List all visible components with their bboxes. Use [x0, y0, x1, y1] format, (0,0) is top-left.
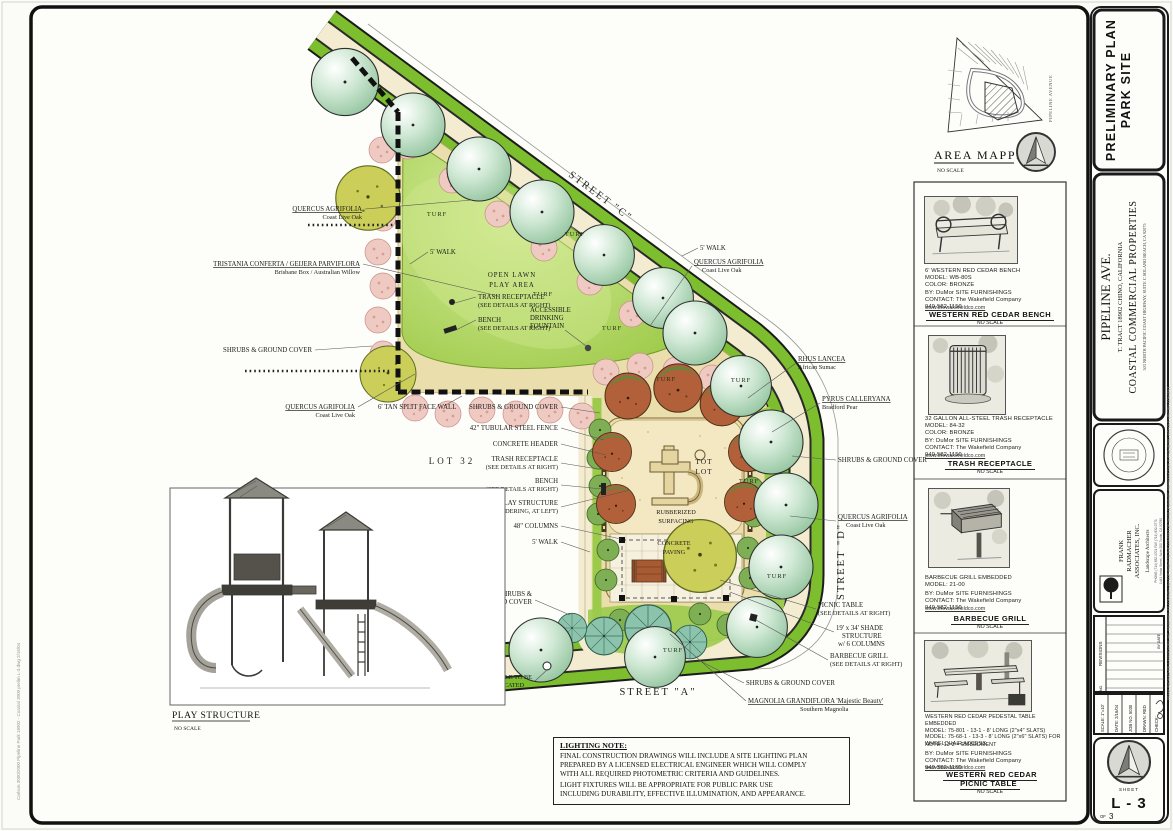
date-entry: DATE: 2/16/04 — [1114, 704, 1119, 732]
revisions-by-date: BY DATE — [1157, 633, 1161, 648]
play-structure-caption: PLAY STRUCTURE — [172, 711, 260, 721]
picnic-noscale: NO SCALE — [916, 789, 1064, 795]
bench-photo — [924, 196, 1018, 264]
label-fountain-1: ACCESSIBLE — [530, 307, 571, 314]
label-tristania-sub: Brisbane Box / Australian Willow — [275, 269, 361, 276]
check-entry: CHECK: — [1154, 716, 1159, 732]
trash-noscale: NO SCALE — [916, 469, 1064, 475]
label-trash-1: TRASH RECEPTACLE — [478, 294, 545, 301]
title-block: PRELIMINARY PLAN PARK SITE PIPELINE AVE.… — [1091, 7, 1168, 823]
label-magnolia-sub: Southern Magnolia — [800, 706, 849, 713]
label-surfacing: SURFACING — [658, 518, 694, 525]
label-rhus-sub: African Sumac — [798, 364, 836, 371]
sheet-number: L - 3 — [1111, 795, 1147, 812]
label-oak-4: QUERCUS AGRIFOLIA — [838, 514, 908, 521]
label-oak-4-sub: Coast Live Oak — [846, 522, 886, 529]
label-shade-3: w/ 6 COLUMNS — [838, 641, 885, 648]
detail-trash: 32 GALLON ALL-STEEL TRASH RECEPTACLE MOD… — [916, 327, 1064, 479]
lighting-note: LIGHTING NOTE: FINAL CONSTRUCTION DRAWIN… — [553, 737, 850, 805]
manhole-symbol — [543, 662, 551, 670]
label-open-lawn-2: PLAY AREA — [489, 282, 535, 289]
detail-bench: 6' WESTERN RED CEDAR BENCH MODEL: WB-80S… — [916, 184, 1064, 326]
label-oak-3-sub: Coast Live Oak — [702, 267, 742, 274]
project-tract: T. TRACT 18902 CHINO, CALIFORNIA — [1117, 241, 1124, 352]
firm-contact2: 1441 Yorba Street, Suite 200 Tustin, CA … — [1159, 518, 1163, 584]
label-magnolia: MAGNOLIA GRANDIFLORA 'Majestic Beauty' — [748, 698, 883, 705]
picnic-detail-title: WESTERN RED CEDAR PICNIC TABLE — [916, 770, 1064, 789]
label-walk-2: 5' WALK — [532, 539, 558, 546]
trash-detail-title: TRASH RECEPTACLE — [916, 459, 1064, 468]
bench-description: 6' WESTERN RED CEDAR BENCH MODEL: WB-80S… — [925, 268, 1061, 290]
label-walk-3: 5' WALK — [700, 245, 726, 252]
label-open-lawn-1: OPEN LAWN — [488, 272, 536, 279]
label-street-d: STREET "D" — [836, 523, 847, 600]
firm-contact1: PHONE (714) 832-1701 FAX (714) 832-0771 — [1154, 519, 1158, 583]
label-columns: 48" COLUMNS — [513, 523, 558, 530]
firm-line3: ASSOCIATES, INC. — [1134, 523, 1141, 578]
of-label: OF — [1100, 814, 1106, 819]
label-rubberized: RUBBERIZED — [656, 509, 696, 516]
drawn-entry: DRAWN: RED — [1142, 705, 1147, 732]
label-trash-2: TRASH RECEPTACLE — [492, 456, 559, 463]
area-mapped-noscale: NO SCALE — [937, 168, 964, 174]
label-shade-2: STRUCTURE — [842, 633, 882, 640]
firm-type: Landscape Architects — [1146, 530, 1151, 573]
label-tot: TOT — [695, 457, 712, 466]
trash-description: 32 GALLON ALL-STEEL TRASH RECEPTACLE MOD… — [925, 416, 1061, 438]
banner-line2: PARK SITE — [1119, 52, 1133, 129]
label-oak-3: QUERCUS AGRIFOLIA — [694, 259, 764, 266]
grill-website: www.thewakefieldco.com — [925, 606, 985, 612]
label-oak-2-sub: Coast Live Oak — [315, 412, 355, 419]
label-turf: TURF — [427, 211, 447, 218]
detail-grill: BARBECUE GRILL EMBEDDED MODEL: 21-00 BY:… — [916, 480, 1064, 633]
label-shade-1: 19' x 34' SHADE — [836, 625, 883, 632]
bench-noscale: NO SCALE — [916, 320, 1064, 326]
label-shrubs-4: SHRUBS & GROUND COVER — [746, 680, 835, 687]
label-concrete-header: CONCRETE HEADER — [493, 441, 559, 448]
label-lot-32: LOT 32 — [429, 456, 476, 466]
banner-line1: PRELIMINARY PLAN — [1104, 19, 1118, 161]
label-concrete: CONCRETE — [657, 540, 690, 547]
picnic-photo — [924, 640, 1032, 712]
grill-noscale: NO SCALE — [916, 624, 1064, 630]
label-shrubs-2: SHRUBS & GROUND COVER — [469, 404, 558, 411]
play-structure-rendering: PLAY STRUCTURE NO SCALE — [170, 478, 505, 732]
label-play-structure-1: PLAY STRUCTURE — [500, 500, 558, 507]
label-pyrus: PYRUS CALLERYANA — [822, 396, 891, 403]
label-see-right: (SEE DETAILS AT RIGHT) — [830, 661, 902, 668]
label-walk-1: 5' WALK — [430, 249, 456, 256]
trash-photo — [928, 335, 1006, 415]
lighting-note-p1: FINAL CONSTRUCTION DRAWINGS WILL INCLUDE… — [560, 752, 843, 779]
label-bench-2: BENCH — [535, 478, 558, 485]
label-fence: 42" TUBULAR STEEL FENCE — [470, 425, 558, 432]
copyright-note: FRANK RADMACHER & ASSOCIATES, INC. RESER… — [1167, 386, 1171, 700]
lighting-note-title: LIGHTING NOTE: — [560, 741, 843, 750]
label-fountain-2: DRINKING — [530, 315, 564, 322]
detail-picnic: WESTERN RED CEDAR PEDESTAL TABLE EMBEDDE… — [916, 634, 1064, 800]
label-turf: TURF — [767, 573, 787, 580]
label-see-right: (SEE DETAILS AT RIGHT) — [818, 610, 890, 617]
picnic-note: NOTE: 13-3 = EMBEDMENT — [925, 742, 1061, 749]
north-arrow-icon — [1017, 133, 1055, 171]
label-shrubs-1: SHRUBS & GROUND COVER — [223, 347, 312, 354]
label-turf: TURF — [602, 325, 622, 332]
label-fountain-3: FOUNTAIN — [530, 323, 564, 330]
label-turf: TURF — [663, 647, 683, 654]
label-turf: TURF — [565, 231, 585, 238]
scale-entry: SCALE: 1"=10' — [1100, 704, 1105, 732]
firm-logo-icon — [1108, 741, 1150, 783]
firm-line1: FRANK — [1118, 540, 1125, 562]
play-structure-noscale: NO SCALE — [174, 726, 201, 732]
label-rhus: RHUS LANCEA — [798, 356, 845, 363]
plot-stamp-note: Carlson 3000/2000 Pipeline Park 18902 - … — [16, 642, 21, 800]
label-paving: PAVING — [663, 549, 686, 556]
plan-sheet: QUERCUS AGRIFOLIA Coast Live Oak TRISTAN… — [0, 0, 1173, 831]
of-value: 3 — [1109, 812, 1114, 821]
revisions-no-label: NO. — [1099, 685, 1103, 691]
inset-street-label: PIPELINE AVENUE — [1048, 75, 1053, 122]
label-see-right: (SEE DETAILS AT RIGHT) — [486, 464, 558, 471]
label-oak-2: QUERCUS AGRIFOLIA — [285, 404, 355, 411]
label-oak-1: QUERCUS AGRIFOLIA — [292, 206, 362, 213]
label-pyrus-sub: Bradford Pear — [822, 404, 858, 411]
label-turf: TURF — [739, 478, 759, 485]
label-oak-1-sub: Coast Live Oak — [322, 214, 362, 221]
grill-detail-title: BARBECUE GRILL — [916, 614, 1064, 623]
grill-photo — [928, 488, 1010, 568]
grill-description: BARBECUE GRILL EMBEDDED MODEL: 21-00 — [925, 575, 1061, 589]
label-wall: 6' TAN SPLIT FACE WALL — [378, 404, 456, 411]
label-turf: TURF — [731, 377, 751, 384]
lighting-note-p2: LIGHT FIXTURES WILL BE APPROPRIATE FOR P… — [560, 781, 843, 799]
bench-detail-title: WESTERN RED CEDAR BENCH — [916, 310, 1064, 319]
label-street-a: STREET "A" — [619, 687, 696, 698]
label-tristania: TRISTANIA CONFERTA / GEIJERA PARVIFLORA — [213, 261, 360, 268]
label-bench-1: BENCH — [478, 317, 501, 324]
firm-line2: RADMACHER — [1126, 530, 1133, 572]
project-name: PIPELINE AVE. — [1098, 253, 1113, 340]
trash-receptacle-symbol — [449, 299, 455, 305]
job-entry: JOB NO. 5030 — [1128, 704, 1133, 732]
label-picnic: PICNIC TABLE — [818, 602, 863, 609]
client-name: COASTAL COMMERCIAL PROPERTIES — [1128, 200, 1139, 393]
label-turf: TURF — [656, 376, 676, 383]
label-lot: LOT — [695, 467, 712, 476]
revisions-label: REVISIONS — [1098, 641, 1103, 666]
label-grill: BARBECUE GRILL — [830, 653, 888, 660]
sheet-label: SHEET — [1119, 787, 1139, 792]
